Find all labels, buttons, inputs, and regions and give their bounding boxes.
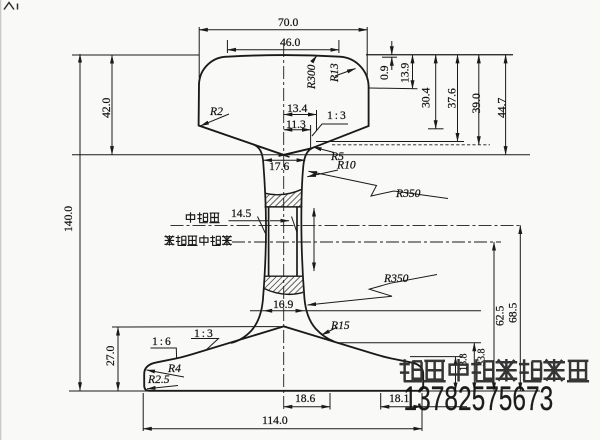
svg-text:114.0: 114.0 [262,414,288,427]
svg-text:46.0: 46.0 [280,36,300,49]
svg-text:R350: R350 [395,187,421,200]
svg-text:1:3: 1:3 [194,327,215,340]
svg-text:62.5: 62.5 [494,306,507,326]
svg-text:27.0: 27.0 [104,346,117,366]
svg-text:R300: R300 [305,64,318,90]
svg-text:R15: R15 [330,319,350,332]
svg-text:18.6: 18.6 [295,392,315,405]
svg-text:13.9: 13.9 [399,63,412,83]
svg-text:R10: R10 [336,159,356,172]
svg-text:R13: R13 [328,63,341,83]
svg-text:1:3: 1:3 [327,109,348,122]
svg-text:68.5: 68.5 [507,303,520,323]
svg-text:14.5: 14.5 [231,207,251,220]
svg-text:30.4: 30.4 [420,88,433,108]
svg-text:70.0: 70.0 [278,16,298,29]
svg-text:13782575673: 13782575673 [403,380,553,418]
svg-text:44.7: 44.7 [496,98,509,118]
svg-text:140.0: 140.0 [62,206,75,232]
svg-text:R2: R2 [209,105,223,118]
svg-text:13.4: 13.4 [287,102,307,115]
svg-text:16.9: 16.9 [273,298,293,311]
svg-text:42.0: 42.0 [100,98,113,118]
svg-text:17.6: 17.6 [269,160,289,173]
svg-text:39.0: 39.0 [470,93,483,113]
svg-text:11.3: 11.3 [286,118,306,131]
svg-text:R2.5: R2.5 [147,373,170,386]
svg-text:0.9: 0.9 [378,65,391,80]
svg-text:37.6: 37.6 [446,88,459,108]
svg-text:1:6: 1:6 [152,335,173,348]
svg-text:R350: R350 [383,272,409,285]
